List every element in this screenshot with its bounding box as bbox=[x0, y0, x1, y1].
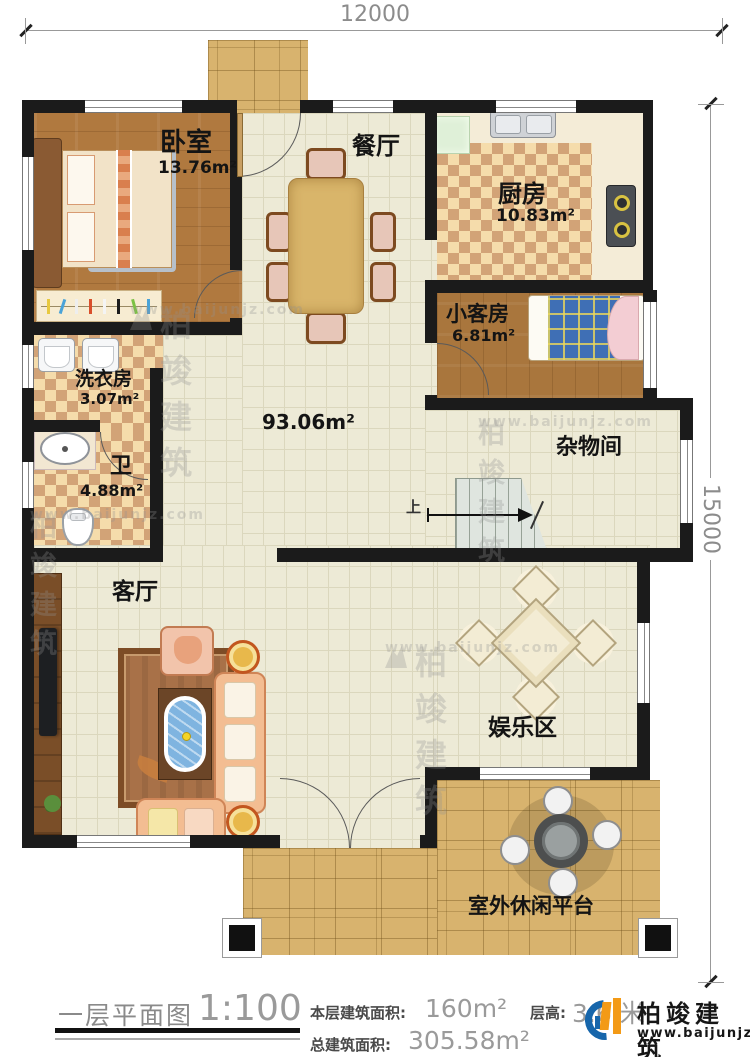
title-underline-2 bbox=[55, 1038, 300, 1040]
dimension-ext bbox=[698, 104, 724, 105]
wall-segment bbox=[680, 398, 693, 440]
hall-area: 93.06m² bbox=[262, 412, 355, 433]
sofa-main bbox=[214, 672, 266, 814]
bed-headboard bbox=[32, 138, 62, 288]
dimension-height-label: 15000 bbox=[698, 478, 723, 560]
wall-segment bbox=[420, 835, 437, 848]
storey-height-label: 层高: bbox=[530, 1002, 566, 1023]
wall-segment bbox=[425, 293, 437, 343]
column bbox=[222, 918, 262, 958]
room-area-bathroom: 4.88m² bbox=[80, 483, 143, 500]
room-area-laundry: 3.07m² bbox=[80, 392, 139, 408]
dimension-ext bbox=[698, 982, 724, 983]
stairs-arrow-head bbox=[518, 508, 533, 522]
wall-segment bbox=[576, 100, 653, 113]
dimension-ext bbox=[722, 18, 723, 44]
wall-segment bbox=[637, 562, 650, 623]
column bbox=[638, 918, 678, 958]
stairs-arrow-line bbox=[428, 514, 520, 516]
room-area-bedroom: 13.76m² bbox=[158, 160, 237, 178]
window bbox=[85, 100, 182, 113]
dining-chair bbox=[306, 148, 346, 180]
kitchen-sink bbox=[490, 110, 556, 138]
window bbox=[643, 302, 657, 388]
total-area-value: 305.58m² bbox=[408, 1026, 530, 1055]
dining-chair bbox=[370, 262, 396, 302]
tv bbox=[39, 628, 57, 736]
room-label-storage: 杂物间 bbox=[556, 436, 622, 459]
wall-segment bbox=[22, 835, 77, 848]
bath-sink bbox=[40, 432, 90, 465]
window bbox=[680, 440, 693, 523]
room-label-laundry: 洗衣房 bbox=[75, 370, 132, 390]
floor-plan-canvas: 上 bbox=[0, 0, 750, 1057]
window bbox=[22, 345, 34, 388]
brand-logo-icon bbox=[585, 996, 633, 1044]
wall-segment bbox=[182, 100, 237, 113]
window bbox=[22, 157, 34, 250]
room-area-guest: 6.81m² bbox=[452, 328, 515, 345]
room-label-dining: 餐厅 bbox=[352, 134, 400, 159]
room-label-terrace: 室外休闲平台 bbox=[468, 895, 594, 917]
wall-segment bbox=[425, 280, 653, 293]
floor-area-value: 160m² bbox=[425, 994, 507, 1023]
washing-machine bbox=[82, 338, 119, 372]
room-label-bathroom: 卫 bbox=[110, 455, 132, 478]
plan-scale: 1:100 bbox=[198, 988, 302, 1029]
dimension-width-label: 12000 bbox=[332, 2, 418, 27]
window bbox=[496, 100, 576, 113]
room-label-guest: 小客房 bbox=[446, 303, 509, 325]
total-area-label: 总建筑面积: bbox=[310, 1034, 391, 1055]
dining-table bbox=[288, 178, 364, 314]
dining-chair bbox=[370, 212, 396, 252]
bed-pillow bbox=[67, 212, 95, 262]
room-label-kitchen: 厨房 bbox=[498, 182, 546, 207]
plant bbox=[44, 795, 61, 812]
room-label-living: 客厅 bbox=[112, 580, 158, 604]
hall-left-floor bbox=[163, 335, 242, 548]
wall-segment bbox=[437, 767, 480, 780]
terrace-chair bbox=[592, 820, 622, 850]
wall-segment bbox=[277, 548, 693, 562]
coffee-table bbox=[164, 696, 206, 772]
window bbox=[637, 623, 650, 703]
room-label-entertainment: 娱乐区 bbox=[488, 716, 557, 740]
bed-blanket-stripe bbox=[116, 150, 132, 268]
stairs-up-label: 上 bbox=[406, 500, 421, 516]
armchair bbox=[160, 626, 214, 676]
terrace-table bbox=[534, 814, 588, 868]
window bbox=[480, 767, 590, 780]
wall-segment bbox=[637, 703, 650, 767]
wall-segment bbox=[150, 420, 163, 560]
terrace-chair bbox=[500, 835, 530, 865]
wall-segment bbox=[34, 420, 100, 432]
room-area-kitchen: 10.83m² bbox=[496, 208, 575, 226]
stairs-arrow-start-tick bbox=[427, 508, 429, 522]
wall-segment bbox=[300, 100, 333, 113]
side-table bbox=[226, 640, 260, 674]
brand-website: www.baijunjz.com bbox=[637, 1026, 750, 1041]
wall-segment bbox=[425, 398, 693, 410]
fridge bbox=[432, 116, 470, 154]
window bbox=[22, 462, 34, 508]
entry-door-leaf bbox=[237, 113, 243, 177]
dining-chair bbox=[306, 312, 346, 344]
washing-machine bbox=[38, 338, 75, 372]
dimension-ext bbox=[25, 18, 26, 44]
wall-segment bbox=[590, 767, 650, 780]
wall-segment bbox=[425, 113, 437, 240]
wall-segment bbox=[190, 835, 280, 848]
wall-segment bbox=[22, 548, 163, 562]
wardrobe bbox=[36, 290, 162, 322]
window bbox=[333, 100, 393, 113]
floor-area-label: 本层建筑面积: bbox=[310, 1002, 406, 1023]
stove bbox=[606, 185, 636, 247]
side-table bbox=[226, 805, 260, 839]
window bbox=[77, 835, 190, 848]
title-underline bbox=[55, 1028, 300, 1033]
brand-logo: 柏竣建筑 www.baijunjz.com bbox=[585, 992, 745, 1052]
wall-segment bbox=[643, 100, 653, 293]
bed-pillow bbox=[67, 155, 95, 205]
terrace-chair bbox=[543, 786, 573, 816]
terrace-floor-left bbox=[243, 848, 437, 955]
dimension-line-top bbox=[25, 30, 722, 31]
wall-segment bbox=[22, 322, 242, 335]
wall-segment bbox=[393, 100, 496, 113]
wall-segment bbox=[643, 290, 657, 302]
wall-segment bbox=[22, 388, 34, 462]
plan-title: 一层平面图 bbox=[58, 996, 193, 1032]
wall-segment bbox=[150, 368, 163, 420]
wall-segment bbox=[22, 100, 34, 157]
room-label-bedroom: 卧室 bbox=[160, 130, 212, 157]
